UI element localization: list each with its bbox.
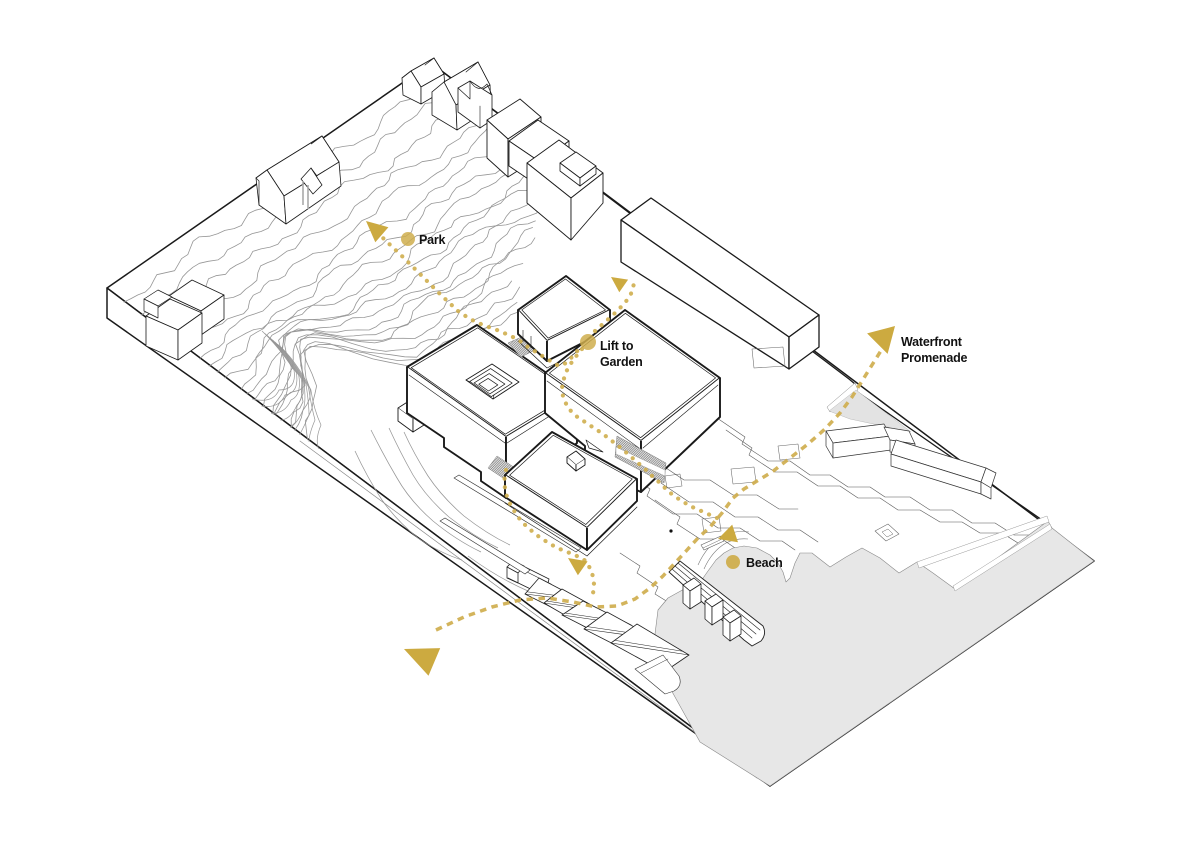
svg-text:Garden: Garden — [600, 355, 643, 369]
svg-text:Promenade: Promenade — [901, 351, 968, 365]
svg-text:Waterfront: Waterfront — [901, 335, 963, 349]
svg-text:Beach: Beach — [746, 556, 783, 570]
svg-text:Park: Park — [419, 233, 446, 247]
svg-text:Lift to: Lift to — [600, 339, 634, 353]
